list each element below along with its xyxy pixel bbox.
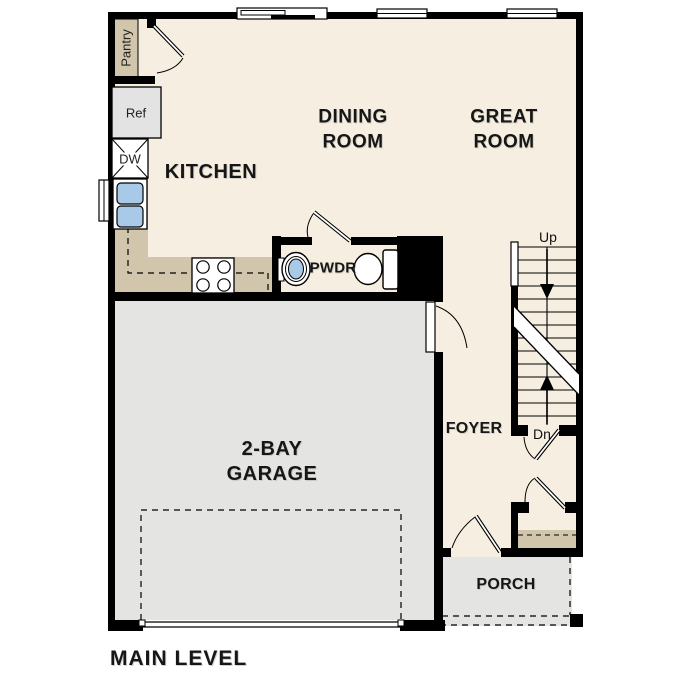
wall-pwdr-top-right xyxy=(351,237,400,245)
great-room-label2: ROOM xyxy=(473,133,534,152)
window-kitchen-sink xyxy=(99,180,109,221)
pwdr-label: PWDR xyxy=(310,261,357,276)
wall-stair-bottom-right xyxy=(559,425,576,436)
floor-plan-drawing xyxy=(0,0,687,687)
wall-foyer-bottom-left xyxy=(434,548,451,557)
refrigerator-label: Ref xyxy=(126,107,146,120)
kitchen-sink xyxy=(113,179,147,229)
wall-foyer-bottom-right xyxy=(501,548,583,557)
foyer-label: FOYER xyxy=(446,421,503,437)
dishwasher-label: DW xyxy=(118,153,142,166)
wall-closet-top-left xyxy=(511,502,529,513)
wall-right xyxy=(576,12,583,557)
closet-shelf xyxy=(518,530,576,549)
cooktop xyxy=(192,258,234,293)
porch-corner-post xyxy=(570,614,583,627)
stair-newel xyxy=(511,242,518,286)
great-room-label: GREAT xyxy=(470,108,538,127)
wall-pwdr-top-left xyxy=(272,237,312,245)
kitchen-label: KITCHEN xyxy=(165,162,257,182)
dining-room-label: DINING xyxy=(318,108,388,127)
stairs-up-label: Up xyxy=(539,230,557,244)
window-top-center xyxy=(377,9,427,18)
dining-room-label2: ROOM xyxy=(322,133,383,152)
plan-title: MAIN LEVEL xyxy=(110,647,247,671)
garage-label2: GARAGE xyxy=(227,464,318,484)
window-top-right xyxy=(507,9,557,18)
floor-plan: KITCHEN DINING ROOM GREAT ROOM PWDR FOYE… xyxy=(0,0,687,687)
garage-label: 2-BAY xyxy=(242,439,303,459)
porch-label: PORCH xyxy=(476,577,535,593)
wall-closet-top-right xyxy=(565,502,576,513)
garage-overhead-door xyxy=(139,620,404,631)
wall-pantry-bottom xyxy=(108,76,155,84)
sliding-glass-door xyxy=(237,8,327,19)
wall-stair-bottom-left xyxy=(511,425,528,436)
chase xyxy=(397,236,443,296)
pantry-label: Pantry xyxy=(120,29,133,67)
stairs-down-label: Dn xyxy=(533,427,551,441)
